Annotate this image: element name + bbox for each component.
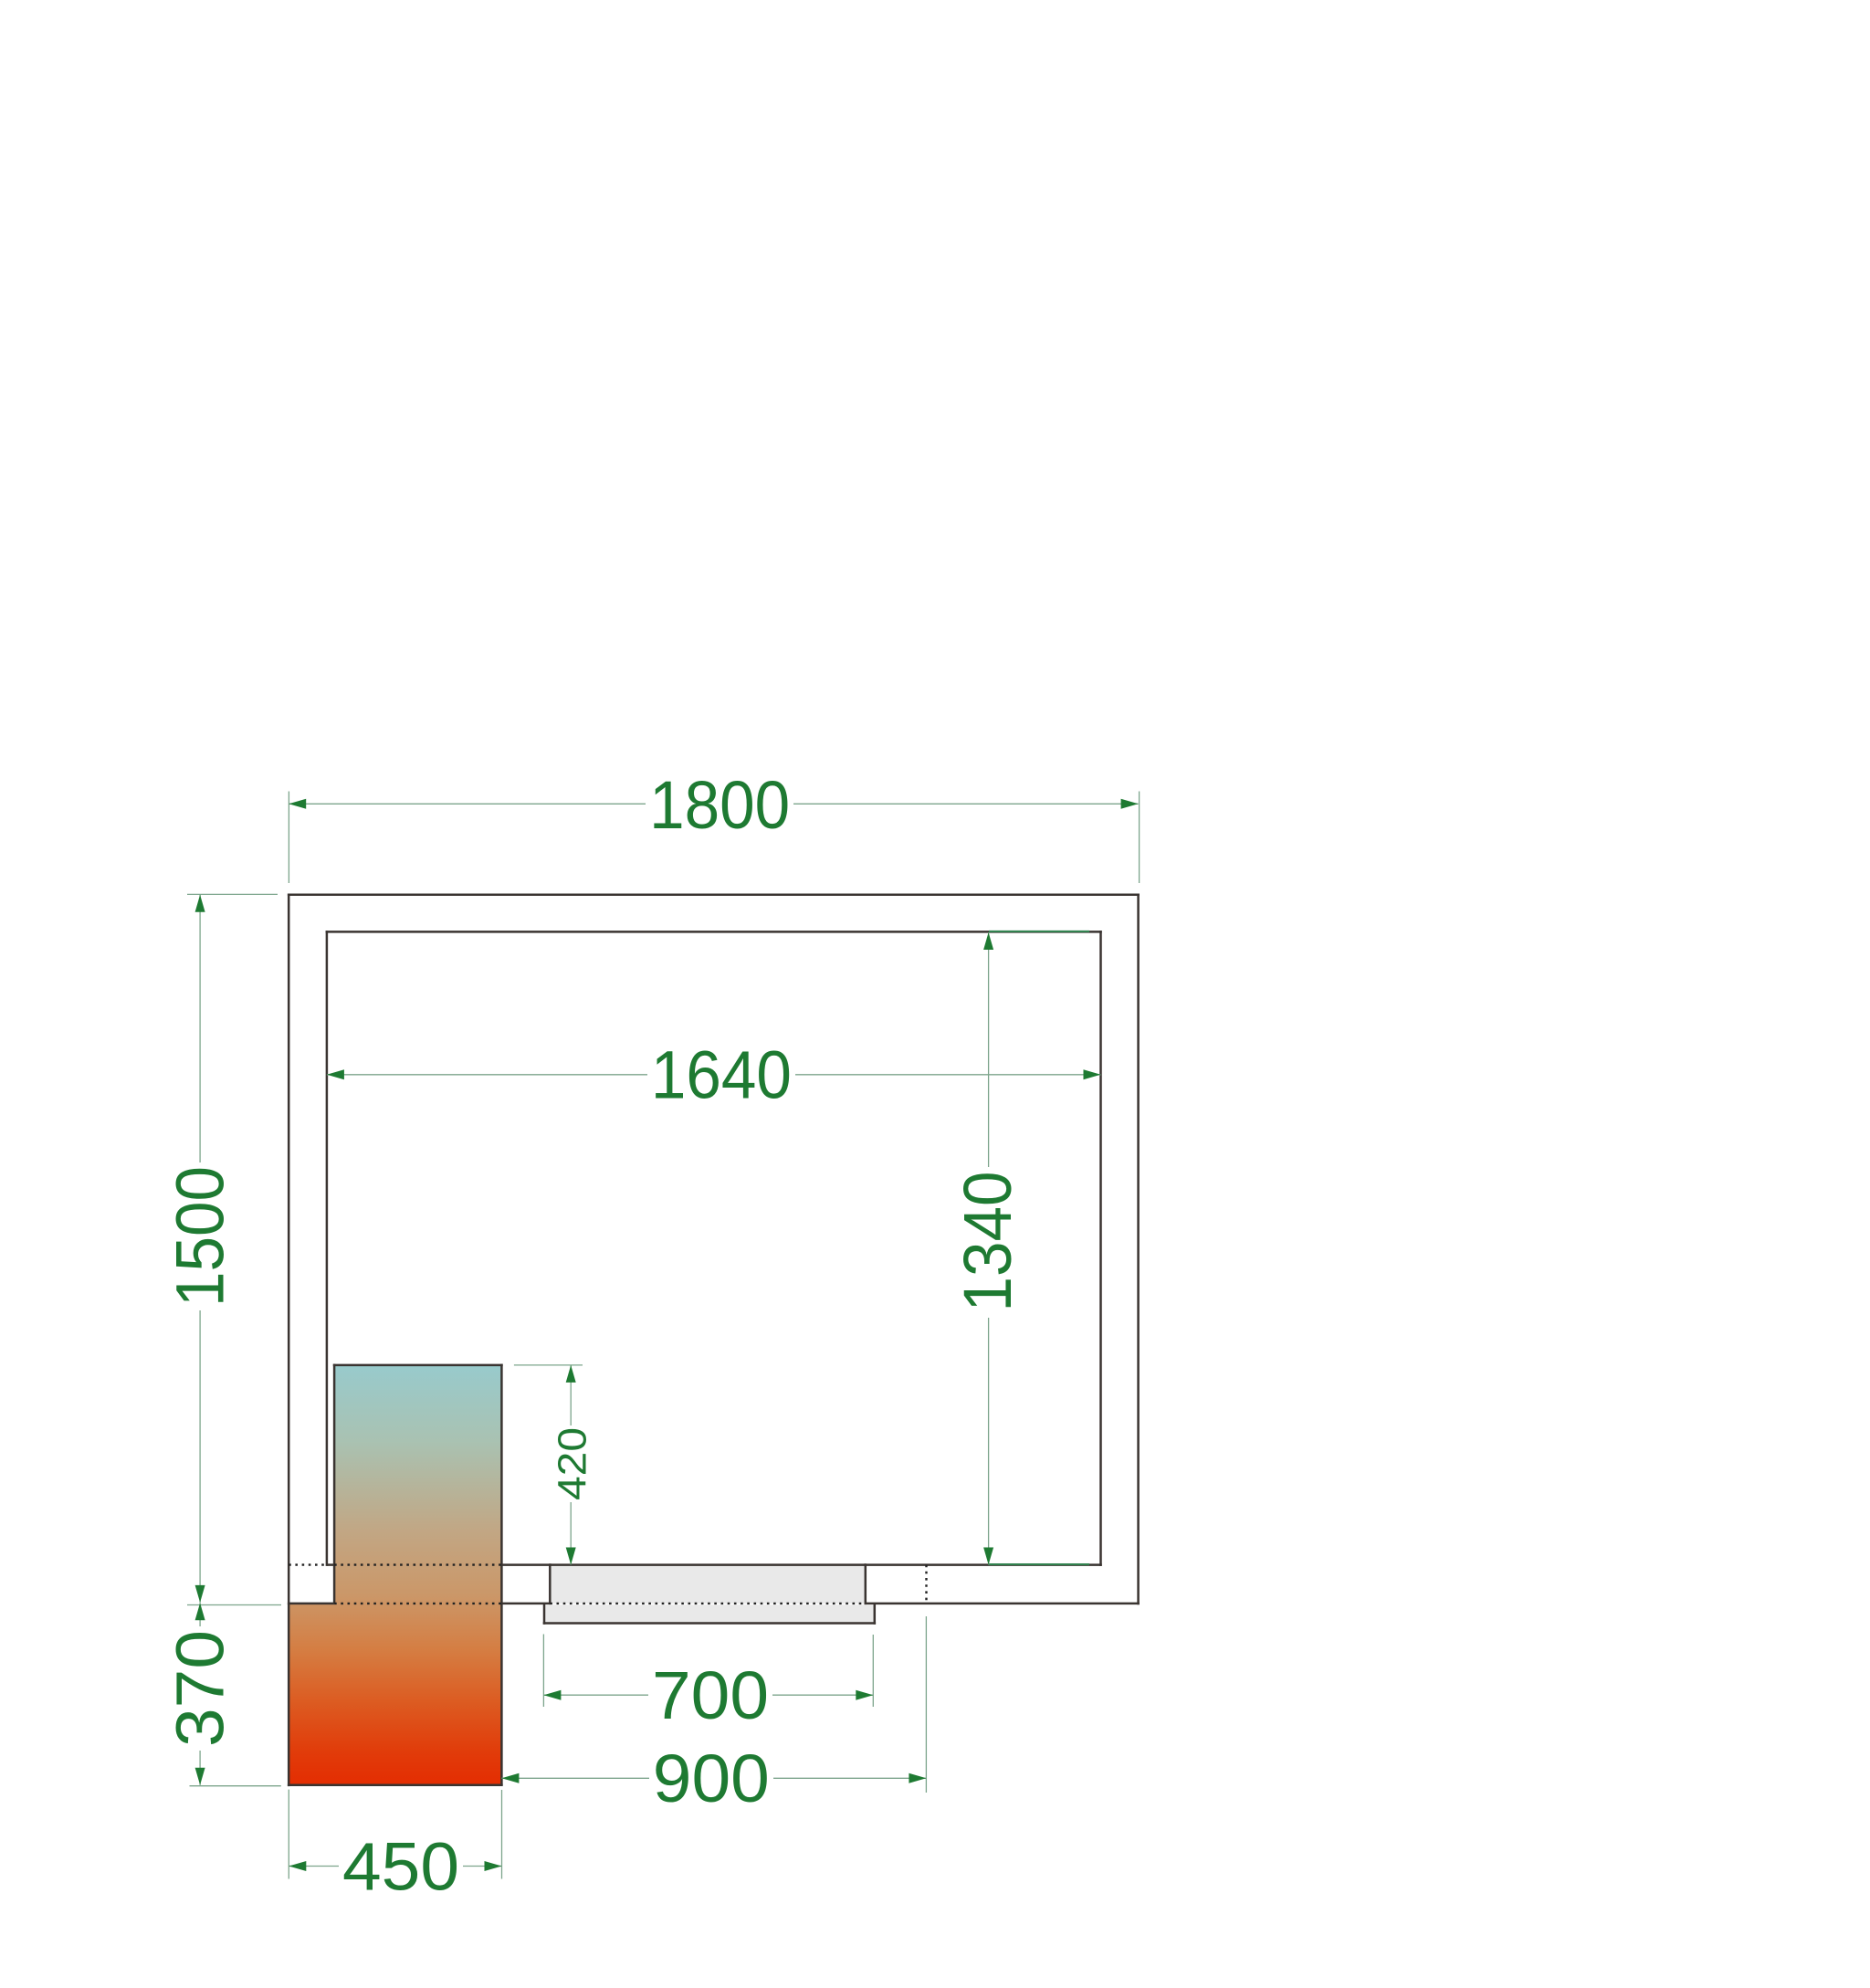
svg-text:420: 420 <box>550 1427 594 1500</box>
svg-text:1800: 1800 <box>649 767 790 843</box>
svg-text:370: 370 <box>163 1630 238 1747</box>
svg-text:1640: 1640 <box>651 1036 792 1112</box>
svg-text:1340: 1340 <box>950 1172 1025 1312</box>
svg-text:900: 900 <box>653 1741 770 1816</box>
svg-text:700: 700 <box>652 1657 769 1733</box>
svg-text:450: 450 <box>342 1828 459 1904</box>
svg-text:1500: 1500 <box>163 1166 238 1307</box>
